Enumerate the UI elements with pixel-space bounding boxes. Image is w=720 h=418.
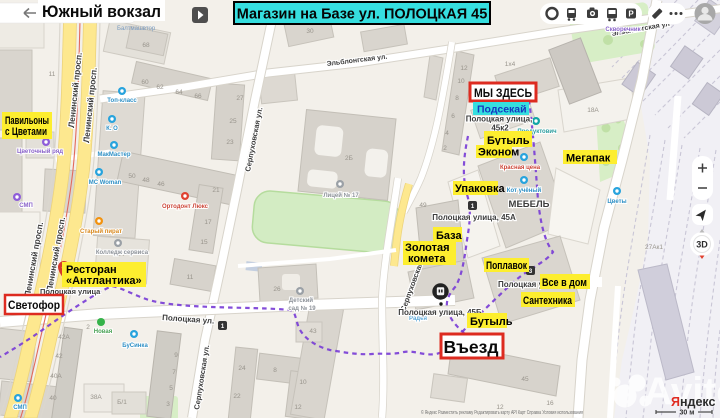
- svg-text:БуСинка: БуСинка: [122, 343, 148, 349]
- svg-text:15: 15: [200, 239, 208, 246]
- svg-text:3: 3: [166, 401, 170, 408]
- svg-text:Колледж сервиса: Колледж сервиса: [96, 250, 149, 256]
- svg-text:27: 27: [236, 95, 244, 102]
- svg-text:50: 50: [128, 173, 136, 180]
- svg-text:База: База: [436, 230, 462, 242]
- svg-text:2: 2: [86, 324, 90, 331]
- svg-text:Сантехника: Сантехника: [523, 295, 573, 307]
- svg-text:Полоцкая улица,: Полоцкая улица,: [466, 115, 533, 124]
- svg-text:Поплавок: Поплавок: [486, 260, 527, 272]
- svg-text:Балтмашвтор: Балтмашвтор: [117, 26, 156, 32]
- svg-text:49: 49: [419, 202, 427, 209]
- svg-text:21: 21: [212, 187, 220, 194]
- svg-text:МЕБЕЛЬ: МЕБЕЛЬ: [509, 199, 550, 210]
- svg-text:Магазин на Базе ул. ПОЛОЦКАЯ 4: Магазин на Базе ул. ПОЛОЦКАЯ 45: [237, 7, 488, 23]
- svg-text:4: 4: [445, 130, 449, 137]
- svg-text:60: 60: [141, 79, 149, 86]
- svg-text:Светофор: Светофор: [8, 300, 60, 312]
- svg-text:62: 62: [156, 84, 164, 91]
- svg-text:30 м: 30 м: [680, 410, 695, 417]
- svg-text:45: 45: [521, 376, 529, 383]
- svg-text:Бутыль: Бутыль: [470, 316, 513, 328]
- svg-text:Все в дом: Все в дом: [542, 277, 587, 289]
- svg-text:22: 22: [233, 393, 241, 400]
- svg-text:Топ-класс: Топ-класс: [107, 98, 137, 104]
- svg-text:P: P: [628, 10, 634, 19]
- svg-text:42А: 42А: [58, 334, 70, 341]
- svg-text:Упаковка: Упаковка: [455, 183, 506, 195]
- svg-text:Эконом: Эконом: [478, 147, 519, 159]
- svg-text:СМП: СМП: [13, 405, 27, 411]
- svg-text:СМП: СМП: [19, 203, 33, 209]
- svg-text:48: 48: [142, 177, 150, 184]
- svg-text:MC Woman: MC Woman: [89, 180, 122, 186]
- svg-text:Б/1: Б/1: [117, 399, 127, 406]
- svg-text:30: 30: [306, 28, 314, 35]
- svg-text:8: 8: [455, 95, 459, 102]
- svg-text:сад № 19: сад № 19: [288, 305, 316, 312]
- svg-text:43: 43: [309, 328, 317, 335]
- svg-text:11: 11: [49, 71, 56, 78]
- svg-text:8: 8: [273, 367, 277, 374]
- svg-text:40: 40: [49, 395, 57, 402]
- svg-text:Южный вокзал: Южный вокзал: [42, 2, 161, 21]
- svg-text:5: 5: [169, 385, 173, 392]
- svg-text:2Б: 2Б: [345, 155, 353, 162]
- svg-text:16: 16: [546, 400, 554, 407]
- svg-text:комета: комета: [408, 253, 446, 265]
- svg-text:«Антлантика»: «Антлантика»: [66, 275, 142, 287]
- svg-text:Мегапак: Мегапак: [566, 153, 611, 165]
- svg-text:3D: 3D: [696, 240, 708, 250]
- svg-text:42: 42: [55, 353, 63, 360]
- svg-text:Подсекай: Подсекай: [477, 104, 527, 116]
- svg-text:© Яндекс Разместить рекламу: © Яндекс Разместить рекламу Редактироват…: [421, 409, 583, 416]
- svg-text:с Цветами: с Цветами: [5, 126, 47, 138]
- svg-text:Скворечник: Скворечник: [605, 27, 640, 33]
- svg-text:10: 10: [457, 78, 465, 85]
- svg-text:Въезд: Въезд: [444, 337, 499, 357]
- svg-text:Цветочный ряд: Цветочный ряд: [17, 148, 63, 155]
- svg-text:38А: 38А: [90, 394, 102, 401]
- svg-text:25: 25: [229, 118, 237, 125]
- svg-text:Полоцкая у: Полоцкая у: [498, 280, 544, 289]
- svg-text:23: 23: [226, 139, 234, 146]
- svg-text:2: 2: [443, 145, 447, 152]
- svg-text:27Ак1: 27Ак1: [645, 244, 663, 251]
- svg-text:К. О: К. О: [106, 126, 118, 132]
- svg-text:6: 6: [451, 113, 455, 120]
- svg-text:17: 17: [204, 219, 212, 226]
- svg-text:68: 68: [142, 42, 150, 49]
- svg-text:66: 66: [194, 93, 202, 100]
- svg-text:Красная цена: Красная цена: [500, 165, 541, 171]
- svg-text:24: 24: [238, 365, 246, 372]
- svg-text:МЫ ЗДЕСЬ: МЫ ЗДЕСЬ: [474, 88, 532, 100]
- svg-text:12: 12: [460, 65, 468, 72]
- svg-text:Яндекс: Яндекс: [671, 395, 716, 409]
- svg-text:МакМастер: МакМастер: [97, 152, 130, 158]
- svg-text:12: 12: [294, 404, 302, 411]
- svg-text:Кот учёный: Кот учёный: [507, 187, 542, 194]
- svg-text:9: 9: [174, 352, 178, 359]
- svg-text:40А: 40А: [50, 373, 62, 380]
- svg-text:11: 11: [187, 274, 194, 281]
- svg-text:Лицей № 17: Лицей № 17: [323, 192, 359, 199]
- svg-text:Ортодонт Люкс: Ортодонт Люкс: [162, 204, 209, 210]
- svg-text:10: 10: [299, 379, 307, 386]
- svg-text:64: 64: [175, 89, 183, 96]
- svg-text:Новая: Новая: [94, 329, 113, 335]
- svg-text:Детский: Детский: [289, 297, 313, 304]
- svg-text:18А: 18А: [587, 107, 599, 114]
- svg-text:7: 7: [172, 369, 176, 376]
- svg-text:26: 26: [273, 286, 281, 293]
- svg-text:1х4: 1х4: [505, 61, 516, 68]
- svg-text:Полоцкая улица, 45А: Полоцкая улица, 45А: [432, 213, 516, 222]
- svg-text:Цветы: Цветы: [607, 199, 626, 205]
- svg-text:Старый пират: Старый пират: [80, 228, 122, 235]
- svg-text:46: 46: [157, 181, 165, 188]
